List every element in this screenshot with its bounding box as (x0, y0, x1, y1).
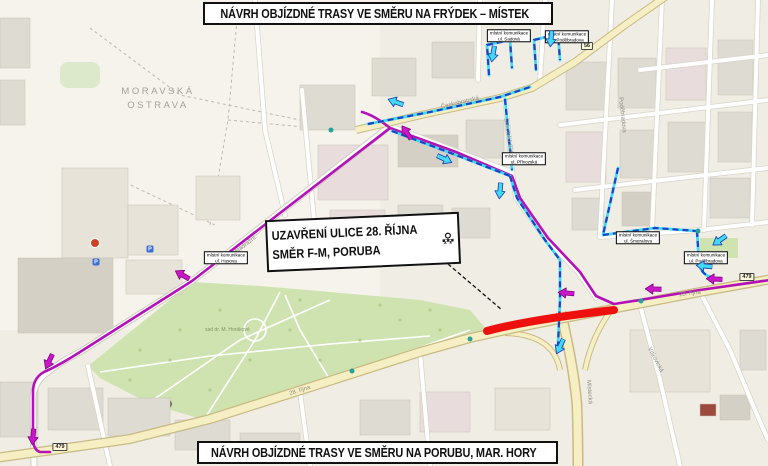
banner-bottom-text: NÁVRH OBJÍZDNÉ TRASY VE SMĚRU NA PORUBU,… (211, 445, 537, 460)
closure-callout-box: UZAVŘENÍ ULICE 28. ŘÍJNA SMĚR F-M, PORUB… (265, 212, 461, 272)
banner-detour-poruba: NÁVRH OBJÍZDNÉ TRASY VE SMĚRU NA PORUBU,… (197, 441, 558, 464)
closure-callout-text: UZAVŘENÍ ULICE 28. ŘÍJNA SMĚR F-M, PORUB… (271, 219, 438, 265)
road-closure-icon (441, 216, 455, 260)
detour-plan-map: MORAVSKÁ OSTRAVA sad dr. M. Horákové Čes… (0, 0, 768, 466)
banner-top-text: NÁVRH OBJÍZDNÉ TRASY VE SMĚRU NA FRÝDEK … (220, 6, 529, 21)
banner-detour-frydek-mistek: NÁVRH OBJÍZDNÉ TRASY VE SMĚRU NA FRÝDEK … (203, 2, 553, 25)
park-small (700, 238, 738, 258)
callout-line (448, 264, 502, 310)
sports-field (60, 62, 100, 88)
closure-segment (487, 310, 614, 331)
